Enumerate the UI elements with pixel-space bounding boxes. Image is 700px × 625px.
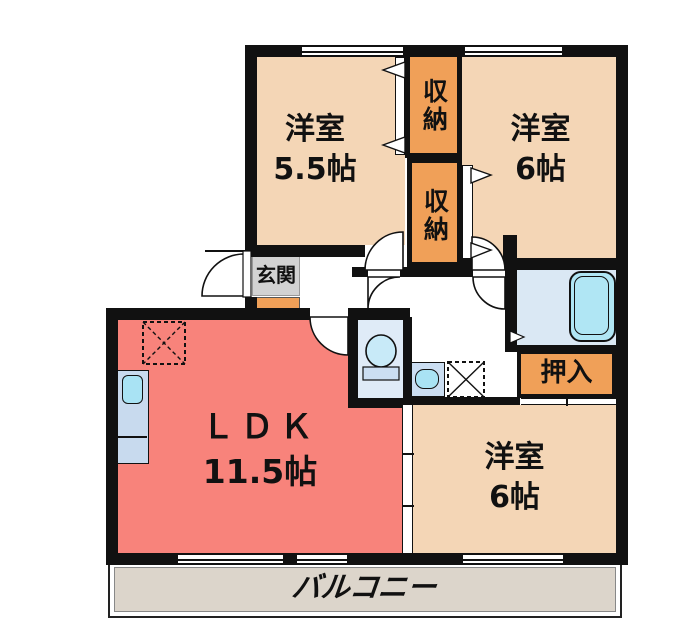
- refrigerator-space-icon: [143, 322, 185, 364]
- symbol-overlay: [0, 0, 700, 625]
- door-arc-icon: [365, 232, 403, 270]
- bifold-door-icon: [471, 168, 491, 183]
- washing-machine-pan-icon: [448, 362, 484, 397]
- bifold-door-icon: [383, 137, 405, 153]
- toilet-icon: [363, 335, 399, 380]
- door-arc-icon: [310, 317, 348, 355]
- bifold-door-icon: [383, 62, 405, 78]
- bath-door-icon: [510, 331, 524, 343]
- door-arc-icon: [473, 277, 505, 309]
- entrance-door-arc-icon: [202, 251, 251, 297]
- door-arc-icon: [368, 277, 400, 309]
- floor-plan: 洋室 5.5帖 洋室 6帖 洋室 6帖 ＬＤＫ 11.5帖 収納 収納 押入 玄…: [0, 0, 700, 625]
